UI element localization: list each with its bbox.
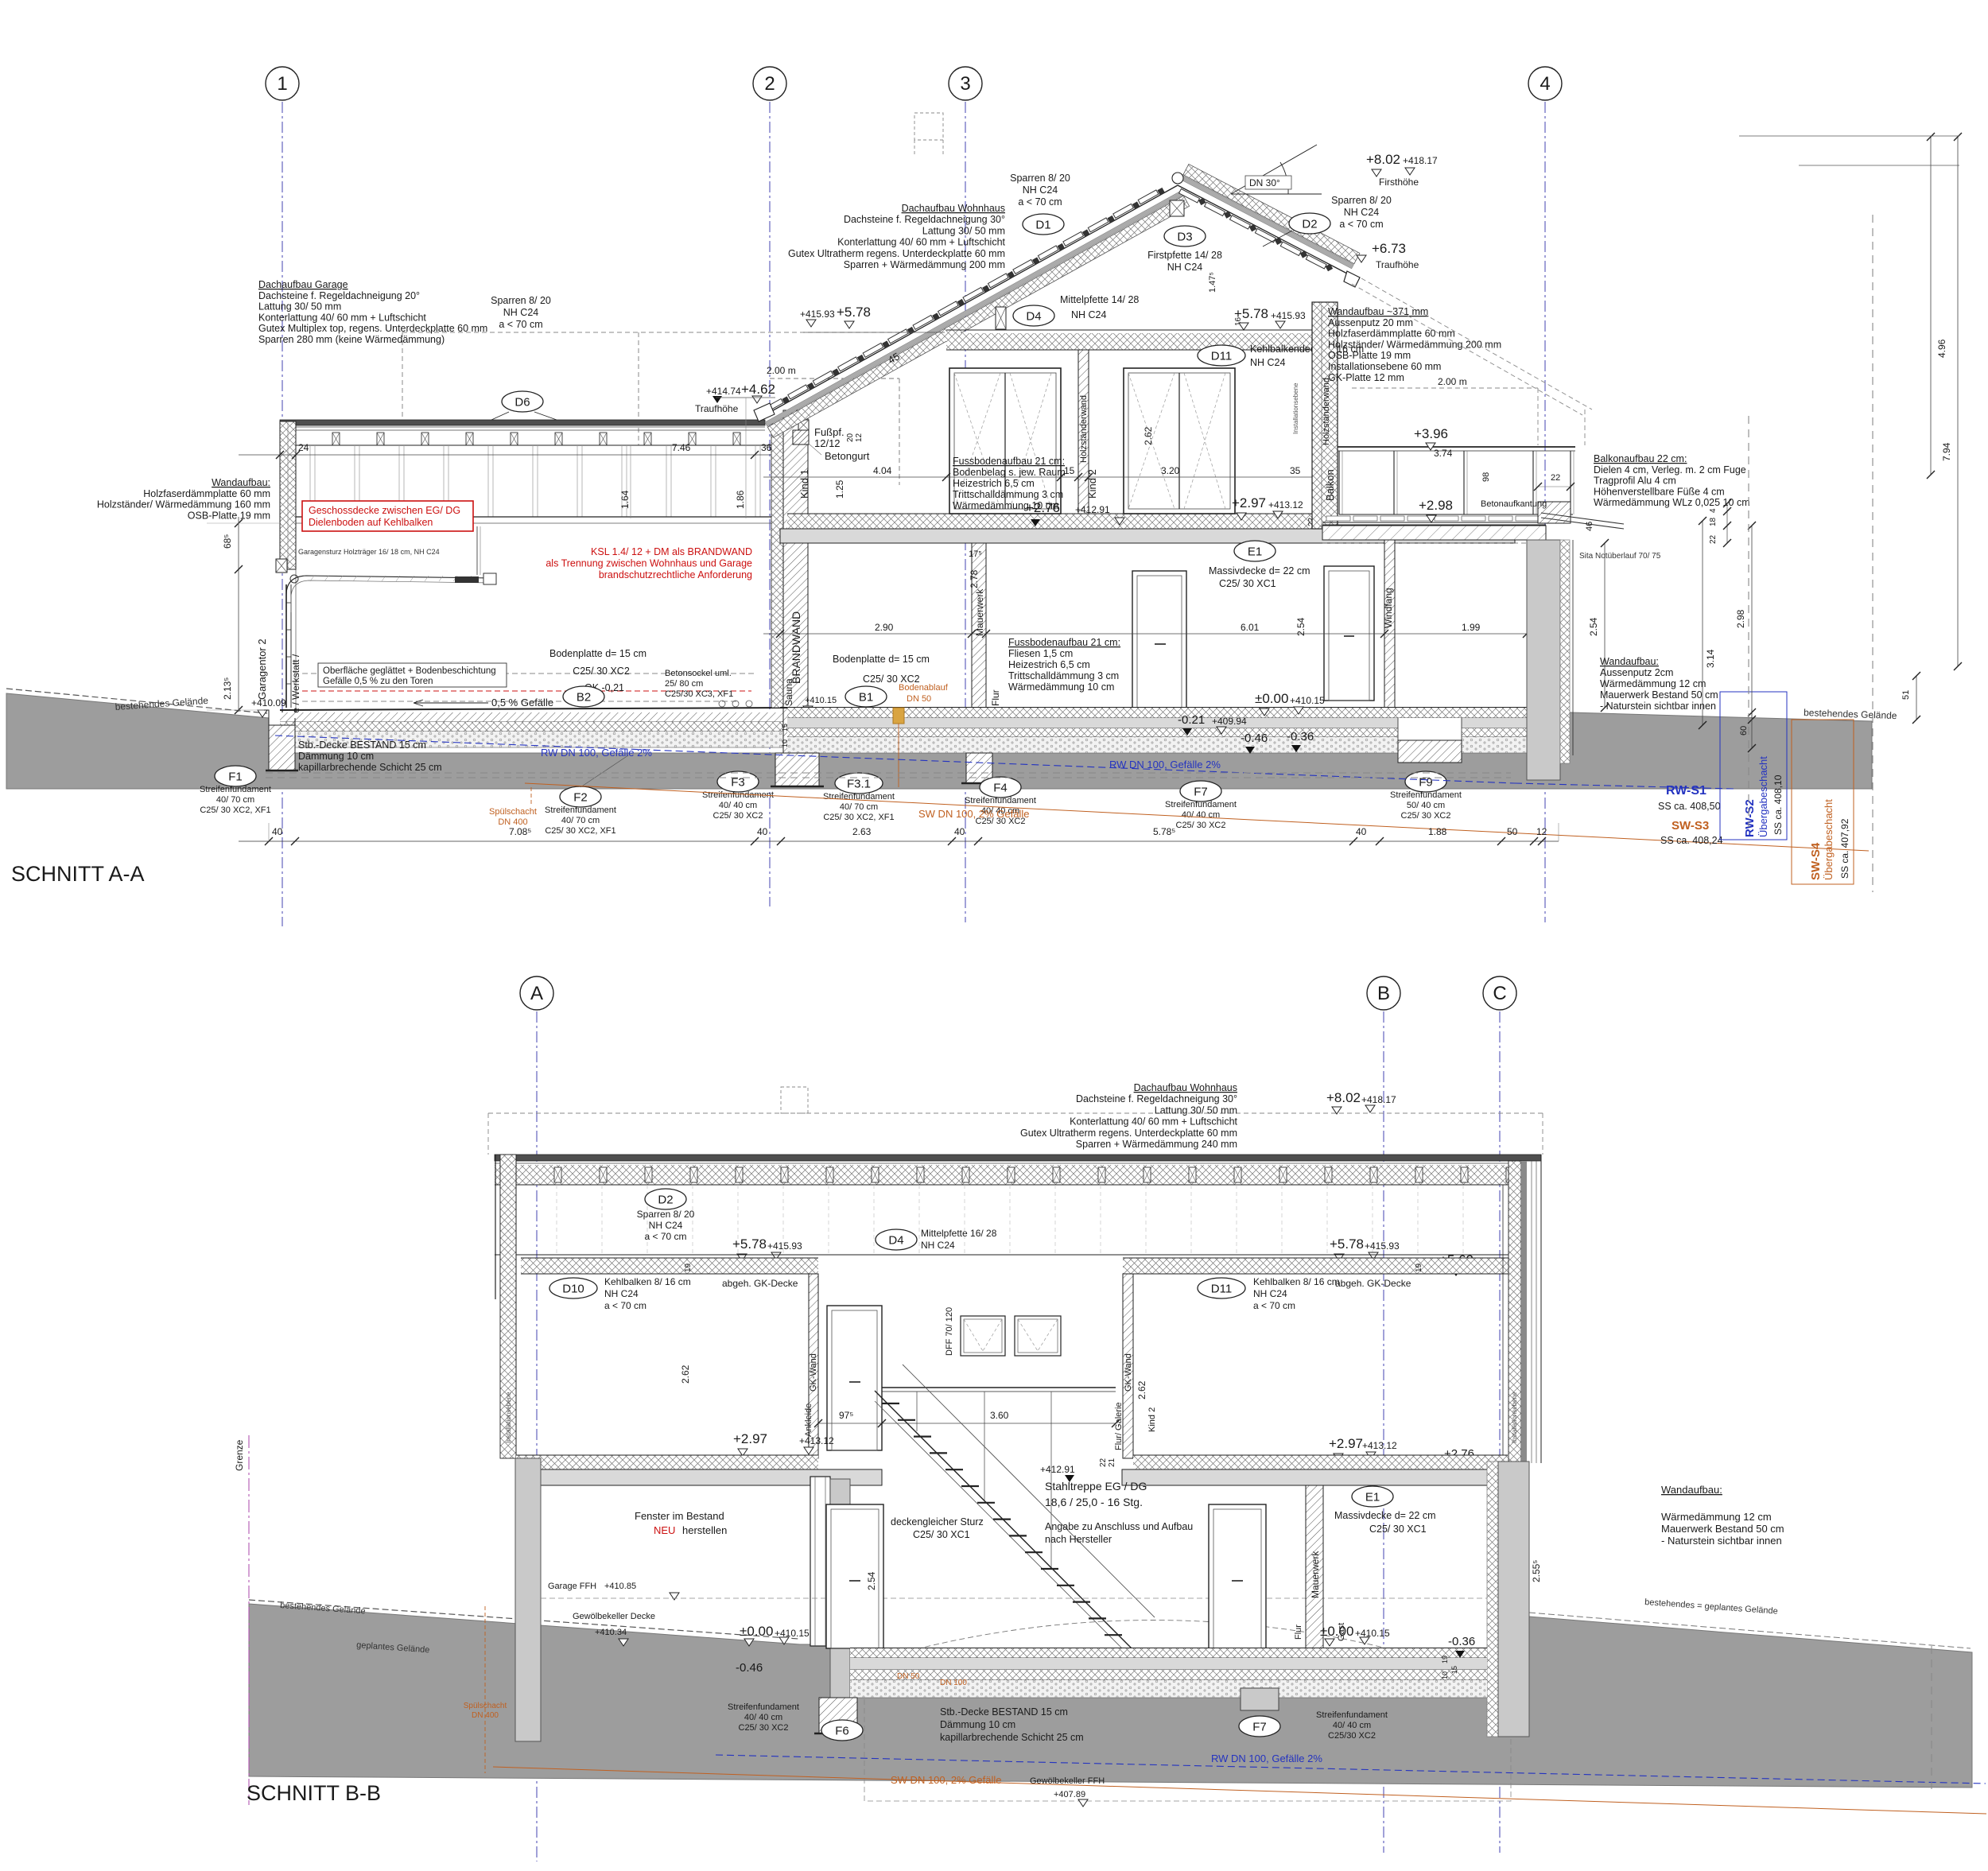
svg-text:40/ 70 cm: 40/ 70 cm [216, 795, 254, 805]
svg-text:46: 46 [1585, 522, 1594, 531]
svg-text:Übergabeschacht: Übergabeschacht [1823, 799, 1835, 880]
svg-text:abgeh. GK-Decke: abgeh. GK-Decke [1335, 1278, 1411, 1289]
svg-text:Flur: Flur [990, 689, 1001, 706]
svg-text:Gewölbekeller Decke: Gewölbekeller Decke [573, 1612, 655, 1621]
svg-text:abgeh. GK-Decke: abgeh. GK-Decke [722, 1278, 798, 1289]
svg-text:Angabe zu Anschluss und Aufbau: Angabe zu Anschluss und Aufbau [1045, 1521, 1193, 1532]
svg-text:Sparren + Wärmedämmung 240 mm: Sparren + Wärmedämmung 240 mm [1076, 1139, 1237, 1150]
svg-text:Oberfläche geglättet + Bodenbe: Oberfläche geglättet + Bodenbeschichtung [323, 666, 496, 676]
svg-text:+409.94: +409.94 [1212, 716, 1247, 727]
svg-text:Garagentor 2: Garagentor 2 [256, 639, 268, 700]
svg-text:C25/ 30 XC2: C25/ 30 XC2 [573, 666, 630, 677]
svg-text:40/ 70 cm: 40/ 70 cm [561, 816, 600, 825]
svg-text:Fussbodenaufbau 21 cm:: Fussbodenaufbau 21 cm: [953, 456, 1065, 467]
svg-text:Gutex Ultratherm regens. Unter: Gutex Ultratherm regens. Unterdeckplatte… [788, 248, 1005, 259]
svg-text:+412.91: +412.91 [1040, 1464, 1075, 1475]
svg-text:Grenze: Grenze [234, 1439, 245, 1471]
svg-text:Holzständer/ Wärmedämmung 200: Holzständer/ Wärmedämmung 200 mm [1328, 339, 1501, 350]
svg-text:3.60: 3.60 [990, 1410, 1009, 1421]
svg-text:Dachaufbau Garage: Dachaufbau Garage [258, 279, 348, 290]
svg-text:D4: D4 [1026, 309, 1041, 323]
svg-text:DN 100: DN 100 [940, 1679, 967, 1687]
svg-text:- Naturstein sichtbar innen: - Naturstein sichtbar innen [1661, 1535, 1782, 1547]
svg-text:D2: D2 [658, 1193, 673, 1206]
svg-text:Aussenputz 2cm: Aussenputz 2cm [1600, 667, 1673, 678]
svg-text:GK-Platte 12 mm: GK-Platte 12 mm [1328, 372, 1404, 383]
svg-text:Holzständerwand: Holzständerwand [1079, 395, 1089, 463]
svg-text:±0.00: ±0.00 [1255, 691, 1288, 706]
svg-text:Firsthöhe: Firsthöhe [1379, 177, 1419, 188]
svg-text:SS ca. 408,50: SS ca. 408,50 [1658, 801, 1721, 812]
svg-text:Flur: Flur [1294, 1625, 1303, 1640]
svg-text:+2.97: +2.97 [1329, 1436, 1363, 1451]
svg-text:F3.1: F3.1 [847, 777, 871, 790]
svg-text:Kind 2: Kind 2 [1147, 1407, 1157, 1432]
svg-text:Sparren 280 mm (keine Wärmedäm: Sparren 280 mm (keine Wärmedämmung) [258, 334, 445, 345]
svg-text:RW DN 100, Gefälle 2%: RW DN 100, Gefälle 2% [1109, 759, 1221, 771]
svg-text:7.08⁵: 7.08⁵ [509, 826, 531, 837]
svg-text:+5.78: +5.78 [732, 1236, 767, 1252]
svg-text:+414.74: +414.74 [706, 386, 741, 397]
svg-text:24: 24 [298, 442, 309, 453]
svg-text:NH C24: NH C24 [921, 1240, 955, 1251]
svg-text:Holzfaserdämmplatte 60 mm: Holzfaserdämmplatte 60 mm [1328, 328, 1455, 340]
svg-text:+415.93: +415.93 [767, 1240, 802, 1252]
svg-text:GK-Wand: GK-Wand [1124, 1353, 1133, 1392]
svg-text:2.54: 2.54 [1295, 617, 1307, 636]
svg-text:Sparren 8/ 20: Sparren 8/ 20 [1010, 173, 1070, 184]
svg-text:NH C24: NH C24 [1344, 207, 1380, 218]
svg-text:+2.97: +2.97 [1232, 495, 1266, 510]
svg-text:Wärmedämmung WLz 0,025 10 cm: Wärmedämmung WLz 0,025 10 cm [1594, 497, 1750, 508]
svg-text:D11: D11 [1211, 1282, 1232, 1295]
svg-text:25/ 80 cm: 25/ 80 cm [665, 679, 703, 689]
svg-text:C: C [1493, 983, 1506, 1004]
svg-text:C25/30 XC2: C25/30 XC2 [1328, 1731, 1376, 1741]
svg-text:F1: F1 [228, 770, 243, 783]
svg-text:18: 18 [1709, 517, 1718, 526]
svg-text:NH C24: NH C24 [604, 1288, 639, 1299]
svg-text:Konterlattung 40/ 60 mm + Luft: Konterlattung 40/ 60 mm + Luftschicht [837, 237, 1005, 248]
svg-text:Kehlbalken 8/ 16 cm: Kehlbalken 8/ 16 cm [604, 1276, 691, 1287]
svg-text:Höhenverstellbare Füße 4 cm: Höhenverstellbare Füße 4 cm [1594, 486, 1725, 497]
svg-text:D10: D10 [562, 1282, 584, 1295]
svg-text:Lattung 30/ 50 mm: Lattung 30/ 50 mm [922, 225, 1005, 236]
svg-text:SCHNITT B-B: SCHNITT B-B [247, 1781, 381, 1805]
svg-text:20: 20 [846, 433, 855, 442]
svg-text:NH C24: NH C24 [1250, 357, 1286, 368]
svg-text:NH C24: NH C24 [1253, 1288, 1287, 1299]
svg-text:C25/ 30 XC2: C25/ 30 XC2 [1401, 811, 1451, 821]
svg-text:2.78: 2.78 [969, 569, 980, 588]
svg-text:Massivdecke d= 22 cm: Massivdecke d= 22 cm [1209, 565, 1310, 576]
svg-text:7.46: 7.46 [672, 442, 691, 453]
svg-text:Wärmedämmung 12 cm: Wärmedämmung 12 cm [1661, 1511, 1772, 1523]
svg-text:als Trennung zwischen Wohnhaus: als Trennung zwischen Wohnhaus und Garag… [546, 558, 752, 569]
svg-text:E1: E1 [1248, 545, 1262, 558]
svg-text:Betonsockel uml.: Betonsockel uml. [665, 669, 732, 678]
svg-text:7.94: 7.94 [1941, 442, 1952, 461]
svg-text:SW DN 100, 2% Gefälle: SW DN 100, 2% Gefälle [918, 808, 1029, 820]
svg-text:2.54: 2.54 [866, 1571, 877, 1590]
svg-text:2.13⁵: 2.13⁵ [222, 677, 233, 700]
svg-text:36: 36 [761, 442, 772, 453]
svg-text:C25/30 XC3, XF1: C25/30 XC3, XF1 [665, 689, 733, 699]
svg-text:+4.62: +4.62 [741, 382, 775, 397]
svg-text:C25/ 30 XC2, XF1: C25/ 30 XC2, XF1 [200, 805, 270, 815]
svg-text:Sparren 8/ 20: Sparren 8/ 20 [491, 295, 551, 306]
svg-text:40: 40 [757, 826, 768, 837]
svg-text:NH C24: NH C24 [1023, 184, 1058, 196]
svg-text:+5.78: +5.78 [1330, 1236, 1364, 1252]
svg-text:+410.15: +410.15 [1290, 695, 1325, 706]
svg-text:3: 3 [960, 73, 970, 95]
svg-text:Streifenfundament: Streifenfundament [1165, 800, 1237, 809]
svg-text:Holzständerwand: Holzständerwand [1322, 378, 1331, 445]
svg-text:Stb.-Decke BESTAND 15 cm: Stb.-Decke BESTAND 15 cm [298, 739, 426, 751]
svg-text:22: 22 [1709, 534, 1718, 544]
svg-text:C25/ 30 XC1: C25/ 30 XC1 [913, 1529, 970, 1540]
svg-text:Sita Notüberlauf 70/ 75: Sita Notüberlauf 70/ 75 [1579, 552, 1661, 561]
svg-text:Balkon: Balkon [1324, 469, 1336, 501]
svg-text:40/ 40 cm: 40/ 40 cm [744, 1713, 782, 1722]
svg-text:+407.89: +407.89 [1054, 1790, 1085, 1799]
svg-text:+8.02: +8.02 [1366, 152, 1400, 167]
svg-text:a < 70 cm: a < 70 cm [1018, 196, 1062, 208]
svg-text:DFF 70/ 120: DFF 70/ 120 [945, 1307, 954, 1356]
svg-text:±0.00: ±0.00 [1320, 1624, 1353, 1639]
svg-text:KSL 1.4/ 12 + DM als BRANDWAND: KSL 1.4/ 12 + DM als BRANDWAND [591, 546, 752, 557]
svg-text:+410.15: +410.15 [805, 696, 837, 705]
svg-text:+2.97: +2.97 [733, 1431, 767, 1446]
svg-text:a < 70 cm: a < 70 cm [644, 1231, 686, 1242]
svg-text:Sparren 8/ 20: Sparren 8/ 20 [637, 1209, 695, 1220]
svg-text:B1: B1 [859, 690, 873, 704]
svg-text:Bodenbelag s. jew. Raum: Bodenbelag s. jew. Raum [953, 467, 1066, 478]
svg-text:OSB-Platte 19 mm: OSB-Platte 19 mm [1328, 350, 1411, 361]
svg-text:-0.36: -0.36 [1287, 730, 1314, 743]
svg-text:40: 40 [954, 826, 965, 837]
svg-text:0,5 % Gefälle: 0,5 % Gefälle [491, 697, 553, 708]
svg-text:Fliesen 1,5 cm: Fliesen 1,5 cm [1008, 648, 1073, 659]
svg-text:+413.12: +413.12 [799, 1435, 834, 1446]
svg-text:15: 15 [1064, 465, 1075, 476]
svg-text:+418.17: +418.17 [1403, 155, 1438, 166]
svg-text:40: 40 [1356, 826, 1367, 837]
svg-text:1.88: 1.88 [1428, 826, 1447, 837]
svg-text:a < 70 cm: a < 70 cm [1253, 1300, 1295, 1311]
svg-text:F7: F7 [1194, 785, 1208, 798]
svg-text:-0.46: -0.46 [1241, 732, 1268, 745]
svg-text:Streifenfundament: Streifenfundament [965, 796, 1036, 805]
svg-text:5.78⁵: 5.78⁵ [1153, 826, 1175, 837]
svg-text:2.00 m: 2.00 m [1438, 376, 1467, 387]
svg-text:Lattung 30/ 50 mm: Lattung 30/ 50 mm [258, 301, 341, 312]
svg-text:SS ca. 408,10: SS ca. 408,10 [1773, 774, 1784, 835]
svg-text:Kind 1: Kind 1 [798, 469, 810, 499]
svg-text:- Naturstein sichtbar innen: - Naturstein sichtbar innen [1600, 701, 1716, 712]
svg-text:40/ 70 cm: 40/ 70 cm [840, 802, 878, 812]
svg-text:SS ca. 407,92: SS ca. 407,92 [1839, 818, 1850, 879]
svg-text:D3: D3 [1177, 230, 1192, 243]
svg-text:BRANDWAND: BRANDWAND [790, 611, 802, 684]
svg-text:GK-Wand: GK-Wand [809, 1353, 818, 1392]
svg-text:deckengleicher Sturz: deckengleicher Sturz [891, 1516, 984, 1527]
svg-text:brandschutzrechtliche Anforder: brandschutzrechtliche Anforderung [599, 569, 752, 580]
svg-text:10: 10 [1441, 1671, 1449, 1679]
svg-text:1: 1 [277, 73, 287, 95]
svg-text:1.47⁵: 1.47⁵ [1208, 272, 1217, 293]
svg-text:Dachsteine f. Regeldachneigung: Dachsteine f. Regeldachneigung 30° [844, 214, 1005, 225]
svg-text:+415.93: +415.93 [800, 309, 835, 320]
svg-text:98: 98 [1481, 472, 1491, 482]
svg-text:Tragprofil Alu 4 cm: Tragprofil Alu 4 cm [1594, 476, 1676, 487]
svg-text:NH C24: NH C24 [1071, 309, 1107, 320]
svg-text:3.20: 3.20 [1161, 465, 1180, 476]
svg-text:Konterlattung 40/ 60 mm + Luft: Konterlattung 40/ 60 mm + Luftschicht [1070, 1116, 1237, 1128]
svg-text:1.64: 1.64 [619, 490, 631, 509]
svg-text:12/12: 12/12 [814, 437, 841, 449]
svg-text:RW-S2: RW-S2 [1743, 799, 1757, 837]
svg-text:Gutex Ultratherm regens. Unter: Gutex Ultratherm regens. Unterdeckplatte… [1020, 1128, 1237, 1139]
svg-text:Holzständer/ Wärmedämmung 160: Holzständer/ Wärmedämmung 160 mm [97, 499, 270, 510]
svg-text:Dachaufbau Wohnhaus: Dachaufbau Wohnhaus [1134, 1082, 1237, 1093]
svg-text:Wärmedämmung 10 cm: Wärmedämmung 10 cm [1008, 681, 1114, 693]
svg-text:Streifenfundament: Streifenfundament [1390, 790, 1462, 800]
svg-text:12: 12 [1536, 826, 1547, 837]
svg-text:Installationsebene 60 mm: Installationsebene 60 mm [1328, 361, 1441, 372]
svg-text:2.00 m: 2.00 m [767, 365, 796, 376]
svg-text:22: 22 [1099, 1458, 1108, 1467]
svg-text:Mittelpfette 14/ 28: Mittelpfette 14/ 28 [1060, 294, 1139, 305]
svg-text:6.01: 6.01 [1241, 622, 1260, 633]
svg-text:C25/ 30 XC2: C25/ 30 XC2 [713, 811, 763, 821]
svg-text:Aussenputz 20 mm: Aussenputz 20 mm [1328, 317, 1413, 328]
svg-text:+413.12: +413.12 [1362, 1440, 1397, 1451]
svg-text:Lattung 30/ 50 mm: Lattung 30/ 50 mm [1155, 1104, 1237, 1116]
svg-text:21: 21 [1108, 1458, 1116, 1467]
svg-text:B: B [1377, 983, 1390, 1004]
svg-text:Trittschalldämmung 3 cm: Trittschalldämmung 3 cm [953, 489, 1063, 500]
svg-text:Gutex Multiplex top, regens. U: Gutex Multiplex top, regens. Unterdeckpl… [258, 323, 487, 334]
svg-text:C25/ 30 XC2, XF1: C25/ 30 XC2, XF1 [545, 826, 615, 836]
svg-text:C25/ 30 XC1: C25/ 30 XC1 [1369, 1524, 1427, 1535]
svg-text:+8.02: +8.02 [1326, 1090, 1361, 1105]
svg-text:+415.93: +415.93 [1271, 310, 1306, 321]
svg-text:+410.09: +410.09 [251, 697, 286, 708]
svg-text:Betongurt: Betongurt [825, 450, 870, 462]
svg-text:SCHNITT A-A: SCHNITT A-A [11, 862, 145, 886]
svg-text:Geschossdecke zwischen EG/ DG: Geschossdecke zwischen EG/ DG [309, 505, 460, 516]
svg-text:Sparren + Wärmedämmung 200 mm: Sparren + Wärmedämmung 200 mm [844, 259, 1005, 270]
svg-text:Dämmung 10 cm: Dämmung 10 cm [940, 1719, 1015, 1730]
svg-text:RW DN 100, Gefälle 2%: RW DN 100, Gefälle 2% [541, 747, 652, 759]
svg-text:a < 70 cm: a < 70 cm [499, 319, 542, 330]
svg-text:Installationsebene: Installationsebene [505, 1392, 512, 1443]
svg-text:Fussbodenaufbau 21 cm:: Fussbodenaufbau 21 cm: [1008, 637, 1120, 648]
svg-text:±0.00: ±0.00 [740, 1624, 773, 1639]
svg-text:C25/ 30 XC2: C25/ 30 XC2 [1176, 821, 1226, 830]
svg-text:F6: F6 [835, 1724, 849, 1737]
svg-text:DN 30°: DN 30° [1249, 177, 1280, 188]
svg-text:2.90: 2.90 [875, 622, 894, 633]
svg-text:4: 4 [1709, 508, 1718, 513]
svg-text:Bodenablauf: Bodenablauf [899, 683, 949, 693]
svg-text:22: 22 [1551, 473, 1560, 483]
svg-text:Heizestrich 6,5 cm: Heizestrich 6,5 cm [953, 478, 1035, 489]
svg-text:3.14: 3.14 [1705, 649, 1716, 668]
svg-text:40/ 40 cm: 40/ 40 cm [1333, 1721, 1371, 1730]
svg-text:+410.85: +410.85 [604, 1582, 636, 1591]
svg-text:Betonaufkantung: Betonaufkantung [1481, 499, 1547, 509]
svg-text:Traufhöhe: Traufhöhe [695, 403, 739, 414]
svg-text:+415.93: +415.93 [1365, 1240, 1400, 1252]
svg-text:Streifenfundament: Streifenfundament [1316, 1710, 1388, 1720]
svg-text:Traufhöhe: Traufhöhe [1376, 259, 1419, 270]
svg-text:Windfang: Windfang [1383, 588, 1394, 628]
svg-text:12: 12 [855, 433, 864, 442]
svg-text:Gefälle 0,5 % zu den Toren: Gefälle 0,5 % zu den Toren [323, 677, 433, 686]
svg-text:Sparren 8/ 20: Sparren 8/ 20 [1331, 195, 1392, 206]
svg-text:Sauna: Sauna [783, 678, 794, 706]
svg-text:Streifenfundament: Streifenfundament [545, 805, 616, 815]
svg-text:NH C24: NH C24 [503, 307, 539, 318]
svg-text:+2.76: +2.76 [1026, 500, 1060, 515]
svg-text:+410.34: +410.34 [595, 1628, 627, 1637]
svg-text:kapillarbrechende Schicht 25 c: kapillarbrechende Schicht 25 cm [940, 1732, 1084, 1743]
svg-text:DN 50: DN 50 [907, 694, 931, 704]
svg-text:4.04: 4.04 [873, 465, 892, 476]
svg-text:SW-S3: SW-S3 [1672, 819, 1709, 833]
svg-text:Mauerwerk: Mauerwerk [974, 588, 985, 636]
svg-text:+5.78: +5.78 [837, 305, 871, 320]
svg-text:A: A [530, 983, 543, 1004]
svg-text:E1: E1 [1365, 1490, 1380, 1504]
svg-text:NEU: NEU [654, 1524, 675, 1536]
svg-text:Übergabeschacht: Übergabeschacht [1757, 756, 1769, 837]
svg-text:1.99: 1.99 [1462, 622, 1481, 633]
svg-text:Garage FFH: Garage FFH [548, 1582, 596, 1591]
svg-text:2.62: 2.62 [1136, 1380, 1147, 1399]
svg-text:-0.36: -0.36 [1448, 1635, 1475, 1648]
svg-text:Kehlbalken 8/ 16 cm: Kehlbalken 8/ 16 cm [1253, 1276, 1340, 1287]
svg-text:40/ 40 cm: 40/ 40 cm [1182, 810, 1220, 820]
svg-text:Trittschalldämmung 3 cm: Trittschalldämmung 3 cm [1008, 670, 1119, 681]
svg-text:NH C24: NH C24 [1167, 262, 1203, 273]
svg-text:17⁵: 17⁵ [969, 549, 982, 559]
svg-text:Dachsteine f. Regeldachneigung: Dachsteine f. Regeldachneigung 20° [258, 290, 420, 301]
svg-text:SW-S4: SW-S4 [1809, 842, 1823, 880]
svg-text:68⁵: 68⁵ [222, 534, 233, 549]
svg-text:Ankleide: Ankleide [804, 1403, 813, 1437]
svg-text:Balkonaufbau 22 cm:: Balkonaufbau 22 cm: [1594, 453, 1687, 464]
svg-text:Garagensturz Holzträger 16/ 18: Garagensturz Holzträger 16/ 18 cm, NH C2… [298, 548, 440, 556]
svg-text:F7: F7 [1252, 1720, 1267, 1733]
svg-text:Streifenfundament: Streifenfundament [728, 1702, 799, 1712]
svg-text:+418.17: +418.17 [1361, 1094, 1396, 1105]
svg-text:Stb.-Decke BESTAND 15 cm: Stb.-Decke BESTAND 15 cm [940, 1706, 1068, 1718]
svg-text:herstellen: herstellen [682, 1524, 727, 1536]
svg-text:B2: B2 [577, 690, 591, 704]
svg-text:Holzfaserdämmplatte 60 mm: Holzfaserdämmplatte 60 mm [143, 488, 270, 499]
svg-text:Bodenplatte d= 15 cm: Bodenplatte d= 15 cm [833, 654, 930, 665]
svg-text:+2.98: +2.98 [1419, 498, 1453, 513]
svg-text:C25/ 30 XC2: C25/ 30 XC2 [739, 1723, 789, 1733]
svg-text:2.62: 2.62 [680, 1364, 691, 1384]
svg-text:4.96: 4.96 [1936, 339, 1947, 358]
svg-text:D6: D6 [514, 395, 530, 409]
svg-text:Wandaufbau:: Wandaufbau: [1600, 656, 1659, 667]
svg-text:DN 50: DN 50 [897, 1672, 920, 1681]
svg-text:C25/ 30 XC2, XF1: C25/ 30 XC2, XF1 [823, 813, 894, 822]
svg-text:1.86: 1.86 [735, 490, 746, 509]
svg-text:2.98: 2.98 [1735, 609, 1746, 628]
svg-text:RW-S1: RW-S1 [1666, 784, 1706, 798]
svg-text:D1: D1 [1035, 218, 1050, 231]
svg-text:10: 10 [781, 739, 789, 747]
svg-text:60: 60 [1739, 726, 1749, 736]
svg-text:Mauerwerk: Mauerwerk [1310, 1551, 1321, 1598]
svg-text:19: 19 [1415, 1263, 1423, 1272]
svg-text:Heizestrich 6,5 cm: Heizestrich 6,5 cm [1008, 659, 1090, 670]
svg-text:50: 50 [1507, 826, 1518, 837]
svg-text:2.62: 2.62 [1143, 426, 1154, 445]
svg-text:Dielenboden auf Kehlbalken: Dielenboden auf Kehlbalken [309, 517, 433, 528]
svg-text:3.74: 3.74 [1434, 448, 1453, 459]
svg-text:Spülschacht: Spülschacht [489, 807, 537, 817]
svg-text:Stahltreppe EG / DG: Stahltreppe EG / DG [1045, 1480, 1147, 1493]
svg-text:D11: D11 [1211, 349, 1232, 363]
svg-text:Flur/ Galerie: Flur/ Galerie [1114, 1402, 1124, 1450]
svg-text:a < 70 cm: a < 70 cm [1339, 219, 1383, 230]
svg-text:Mauerwerk Bestand 50 cm: Mauerwerk Bestand 50 cm [1661, 1523, 1784, 1535]
svg-text:Massivdecke d= 22 cm: Massivdecke d= 22 cm [1334, 1510, 1435, 1521]
svg-text:nach Hersteller: nach Hersteller [1045, 1534, 1112, 1545]
svg-text:+413.12: +413.12 [1268, 499, 1303, 510]
svg-text:D2: D2 [1302, 217, 1317, 231]
svg-text:Mauerwerk Bestand 50 cm: Mauerwerk Bestand 50 cm [1600, 689, 1718, 701]
svg-text:Konterlattung 40/ 60 mm + Luft: Konterlattung 40/ 60 mm + Luftschicht [258, 312, 426, 323]
svg-text:50/ 40 cm: 50/ 40 cm [1407, 801, 1445, 810]
svg-text:-0.21: -0.21 [1178, 713, 1205, 727]
svg-text:SS ca. 408,24: SS ca. 408,24 [1660, 835, 1723, 846]
svg-text:51: 51 [1901, 690, 1911, 700]
svg-text:4: 4 [1540, 73, 1550, 95]
svg-text:Installationsebene: Installationsebene [1292, 382, 1299, 434]
svg-text:F4: F4 [993, 781, 1008, 794]
svg-text:2: 2 [764, 73, 775, 95]
svg-text:2.54: 2.54 [1588, 617, 1599, 636]
svg-text:Wandaufbau:: Wandaufbau: [1661, 1484, 1722, 1496]
svg-text:a < 70 cm: a < 70 cm [604, 1300, 646, 1311]
svg-text:Wärmedämmung 12 cm: Wärmedämmung 12 cm [1600, 678, 1706, 689]
svg-text:RW DN 100, Gefälle 2%: RW DN 100, Gefälle 2% [1211, 1753, 1322, 1764]
svg-text:D4: D4 [888, 1233, 903, 1247]
svg-text:15: 15 [781, 724, 789, 732]
svg-text:F2: F2 [573, 790, 588, 804]
svg-text:Dielen 4 cm, Verleg. m. 2 cm F: Dielen 4 cm, Verleg. m. 2 cm Fuge [1594, 464, 1746, 476]
svg-text:Firstpfette 14/ 28: Firstpfette 14/ 28 [1147, 250, 1222, 261]
svg-text:SW DN 100, 2% Gefälle: SW DN 100, 2% Gefälle [891, 1774, 1001, 1786]
svg-text:Bodenplatte d= 15 cm: Bodenplatte d= 15 cm [549, 648, 646, 659]
svg-text:18,6 / 25,0 - 16 Stg.: 18,6 / 25,0 - 16 Stg. [1045, 1496, 1143, 1508]
svg-text:40: 40 [272, 826, 283, 837]
svg-text:Dämmung 10 cm: Dämmung 10 cm [298, 751, 374, 762]
svg-text:+412.91: +412.91 [1075, 504, 1110, 515]
svg-text:-0.46: -0.46 [736, 1661, 763, 1675]
svg-text:+5.78: +5.78 [1234, 306, 1268, 321]
svg-text:Fenster im Bestand: Fenster im Bestand [635, 1510, 724, 1522]
